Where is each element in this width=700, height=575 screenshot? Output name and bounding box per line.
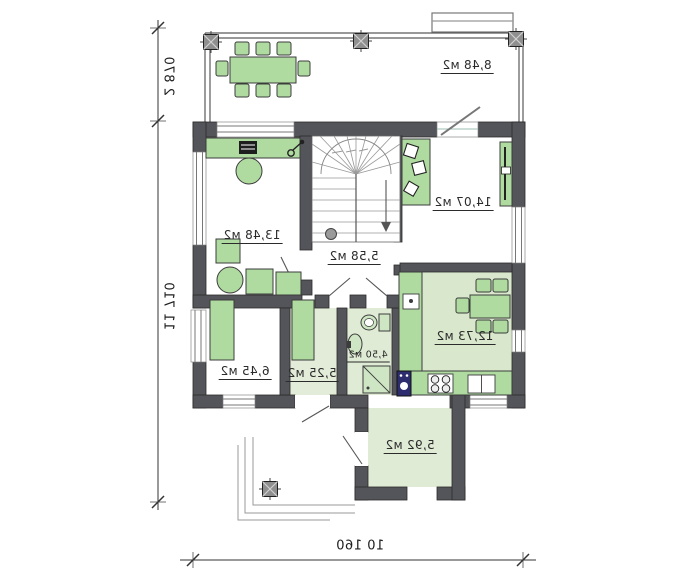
room525-wardrobe [292,300,314,360]
room-label-bedroom: 14,07 м2 [432,195,493,211]
porch-outline [238,437,355,520]
dimension-line-bottom [180,552,536,568]
room-label-hall: 5,58 м2 [327,249,380,265]
column-marker [505,28,527,50]
window-left-study [193,152,206,245]
dimension-label-terrace-depth: 2 870 [161,56,176,96]
window-right-kitchen [512,330,525,352]
kitchen-sink-icon [403,294,419,309]
dining-set [216,42,310,97]
room-label-kitchen: 12,73 м2 [434,329,495,345]
room-label-bathroom: 4,50 м2 [346,350,389,363]
room-label-terrace: 8,48 м2 [440,58,493,74]
porch-column-marker [259,478,281,500]
floor-plan-drawing [0,0,700,575]
room-label-study: 13,48 м2 [221,228,282,244]
room-label-entry: 5,92 м2 [383,438,436,454]
kitchen-counter-left [399,272,422,371]
room-label-645: 6,45 м2 [218,364,271,380]
porch-door-opening [295,395,330,408]
floor-plan-canvas: 8,48 м2 13,48 м2 14,07 м2 5,58 м2 12,73 … [0,0,700,575]
window-bottom-kitchen [470,395,507,408]
window-top-terrace [217,122,294,137]
terrace-steps [432,13,513,32]
column-marker [200,31,222,53]
study-furniture [206,138,301,295]
room645-wardrobe [210,300,234,360]
window-bottom-room645 [223,395,255,408]
kitchen-table [470,295,510,318]
oven-icon [397,371,411,396]
room-label-525: 5,25 м2 [285,366,338,382]
dimension-label-total-width: 10 160 [336,539,385,554]
dimension-label-total-height: 11 710 [161,282,176,331]
study-seat-2 [276,272,301,295]
window-left-room645 [191,310,206,362]
fridge-icon [468,375,495,393]
window-right-bedroom [512,207,525,263]
dining-table [230,57,296,83]
column-marker [350,30,372,52]
study-seat [246,269,273,294]
study-round-table [217,267,243,293]
hob-icon [428,374,453,393]
desk-chair [236,158,262,184]
staircase [312,136,400,242]
computer-icon [239,141,257,154]
shower-icon [363,366,390,393]
newel-post [326,229,337,240]
entry-door-opening [355,432,368,466]
